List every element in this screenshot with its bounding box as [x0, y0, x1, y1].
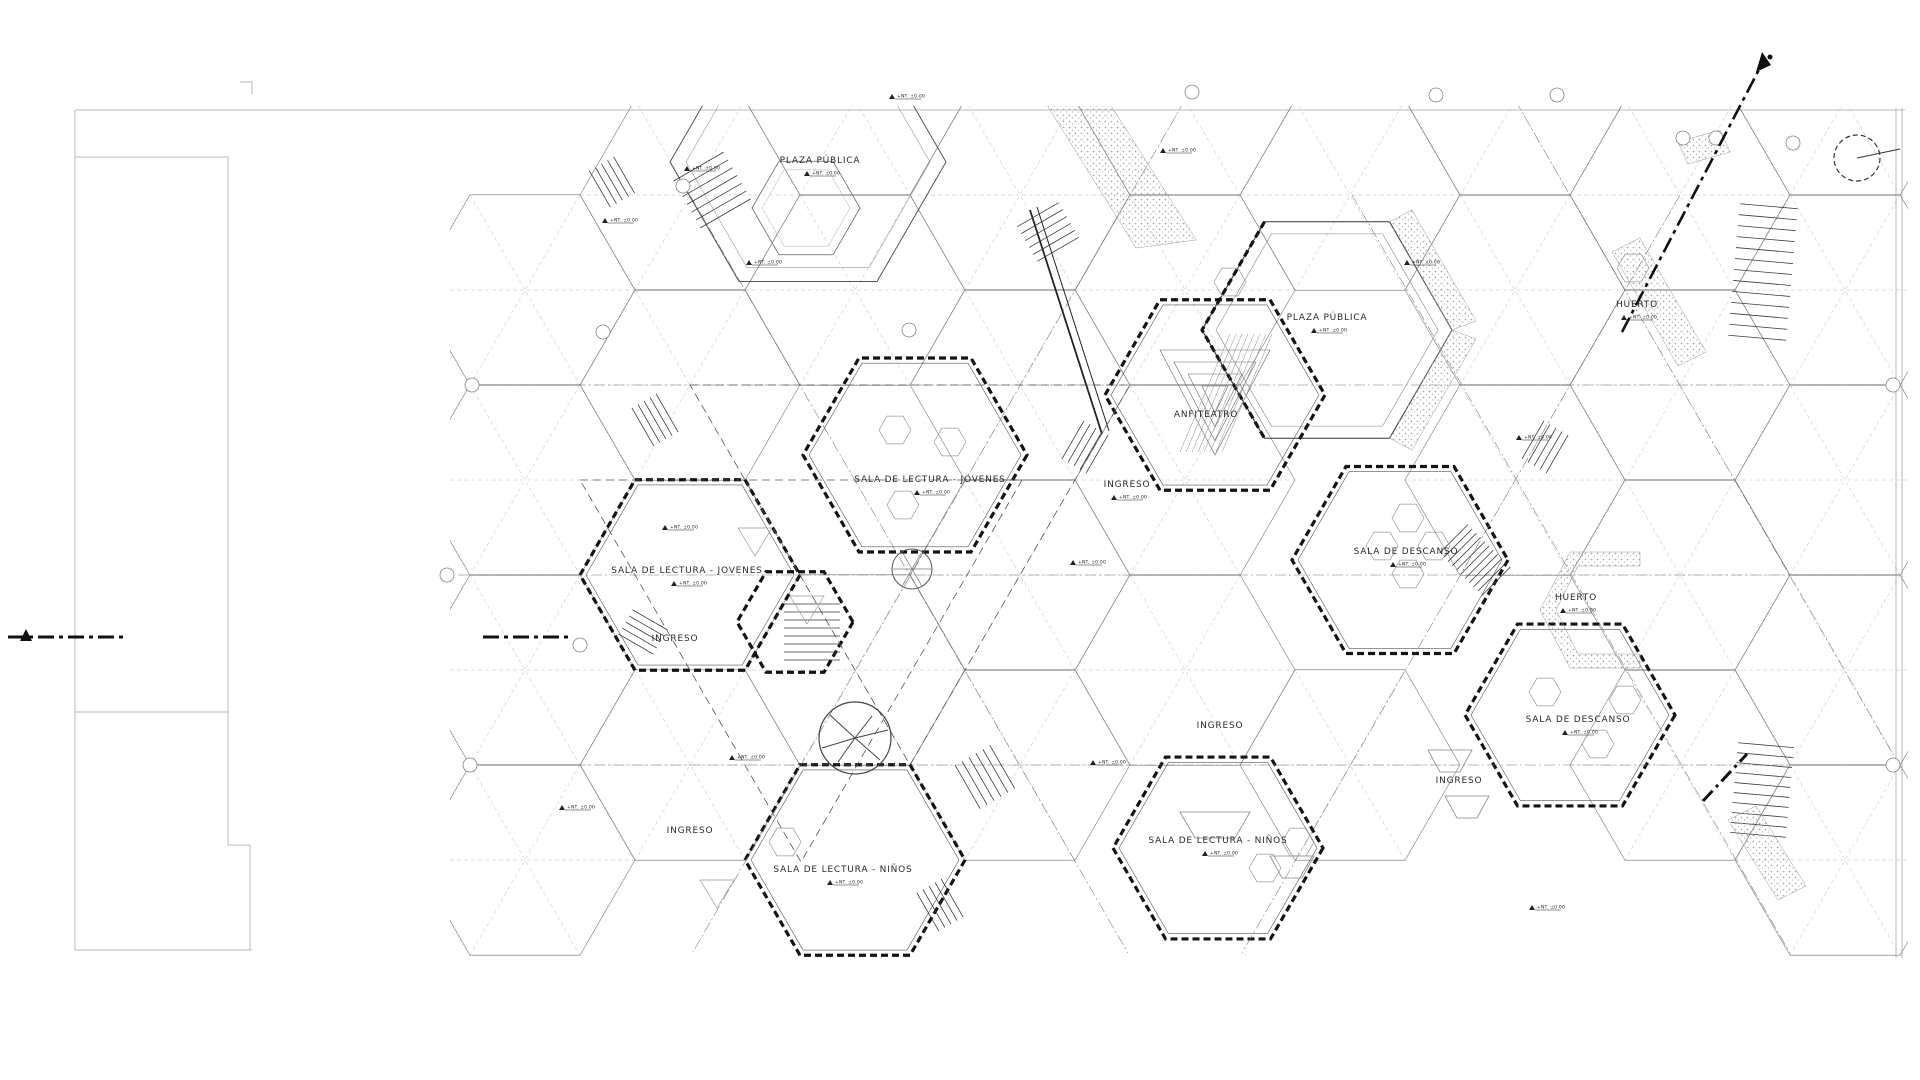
- room-label-huerto-2: HUERTO: [1616, 300, 1658, 310]
- boundary-tick: [240, 82, 252, 94]
- room-label-huerto-1: HUERTO: [1555, 593, 1597, 603]
- room-label-ingreso-5: INGRESO: [667, 826, 714, 836]
- level-marker-icon: +NT. ±0.00: [684, 166, 720, 172]
- level-marker-text: +NT. ±0.00: [1078, 560, 1106, 566]
- level-marker-icon: +NT. ±0.00: [889, 94, 925, 100]
- level-marker-icon: +NT. ±0.00: [1070, 560, 1106, 566]
- level-marker-text: +NT. ±0.00: [679, 581, 707, 587]
- level-marker-icon: +NT. ±0.00: [1404, 260, 1440, 266]
- level-marker-text: +NT. ±0.00: [922, 490, 950, 496]
- level-marker-text: +NT. ±0.00: [1168, 148, 1196, 154]
- level-marker-text: +NT. ±0.00: [692, 166, 720, 172]
- plaza-hexagons: [670, 42, 1452, 438]
- stair-run: [1728, 204, 1797, 341]
- level-marker-icon: +NT. ±0.00: [1529, 905, 1565, 911]
- level-marker-text: +NT. ±0.00: [1570, 730, 1598, 736]
- level-marker-text: +NT. ±0.00: [1319, 328, 1347, 334]
- room-hexagons: [580, 300, 1675, 956]
- stair-run: [589, 157, 634, 207]
- level-marker-icon: +NT. ±0.00: [914, 490, 950, 496]
- room-label-sala-lectura-jovenes-1: SALA DE LECTURA - JOVENES: [854, 475, 1005, 485]
- room-label-sala-lectura-ninos-1: SALA DE LECTURA - NIÑOS: [1148, 835, 1287, 846]
- plan-geometry: [415, 5, 1920, 956]
- floor-plan-canvas: +NT. ±0.00+NT. ±0.00+NT. ±0.00+NT. ±0.00…: [0, 0, 1920, 1080]
- level-marker-icon: +NT. ±0.00: [662, 525, 698, 531]
- stair-run: [917, 879, 963, 931]
- section-cut-lines: [8, 52, 1773, 801]
- level-marker-text: +NT. ±0.00: [1524, 435, 1552, 441]
- stair-run: [1440, 525, 1511, 596]
- stair-run: [619, 610, 668, 654]
- level-marker-text: +NT. ±0.00: [1568, 608, 1596, 614]
- level-marker-text: +NT. ±0.00: [897, 94, 925, 100]
- compass-icon: [1834, 135, 1900, 181]
- level-marker-text: +NT. ±0.00: [737, 755, 765, 761]
- grid-bubbles: [440, 85, 1900, 772]
- level-marker-icon: +NT. ±0.00: [1160, 148, 1196, 154]
- room-label-plaza-publica-1: PLAZA PÚBLICA: [780, 154, 861, 166]
- level-marker-icon: +NT. ±0.00: [1111, 495, 1147, 501]
- level-marker-icon: +NT. ±0.00: [804, 171, 840, 177]
- room-label-ingreso-3: INGRESO: [1436, 776, 1483, 786]
- level-marker-icon: +NT. ±0.00: [827, 880, 863, 886]
- stair-run: [955, 745, 1015, 808]
- tree-symbols: [819, 549, 932, 774]
- level-marker-icon: +NT. ±0.00: [671, 581, 707, 587]
- level-marker-text: +NT. ±0.00: [1537, 905, 1565, 911]
- level-marker-icon: +NT. ±0.00: [1562, 730, 1598, 736]
- furniture-symbols: [700, 254, 1649, 908]
- level-marker-text: +NT. ±0.00: [812, 171, 840, 177]
- room-label-ingreso-1: INGRESO: [1104, 480, 1151, 490]
- level-marker-text: +NT. ±0.00: [1098, 760, 1126, 766]
- level-markers: +NT. ±0.00+NT. ±0.00+NT. ±0.00+NT. ±0.00…: [559, 94, 1657, 911]
- level-marker-icon: +NT. ±0.00: [1560, 608, 1596, 614]
- site-boundary: [75, 82, 1905, 958]
- level-marker-icon: +NT. ±0.00: [1516, 435, 1552, 441]
- level-marker-icon: +NT. ±0.00: [1311, 328, 1347, 334]
- stair-run: [784, 604, 840, 660]
- stair-runs: [589, 152, 1797, 931]
- level-marker-text: +NT. ±0.00: [1629, 315, 1657, 321]
- room-label-ingreso-2: INGRESO: [652, 634, 699, 644]
- level-marker-text: +NT. ±0.00: [567, 805, 595, 811]
- level-marker-icon: +NT. ±0.00: [1390, 562, 1426, 568]
- level-marker-icon: +NT. ±0.00: [1621, 315, 1657, 321]
- level-marker-text: +NT. ±0.00: [670, 525, 698, 531]
- room-label-sala-lectura-ninos-2: SALA DE LECTURA - NIÑOS: [773, 864, 912, 875]
- level-marker-text: +NT. ±0.00: [610, 218, 638, 224]
- room-label-anfiteatro: ANFITEATRO: [1174, 410, 1238, 420]
- level-marker-icon: +NT. ±0.00: [559, 805, 595, 811]
- room-label-ingreso-4: INGRESO: [1197, 721, 1244, 731]
- stair-run: [632, 394, 678, 446]
- level-marker-text: +NT. ±0.00: [1210, 851, 1238, 857]
- level-marker-icon: +NT. ±0.00: [1202, 851, 1238, 857]
- stair-run: [1017, 203, 1079, 262]
- axis-triangles: [580, 385, 1130, 862]
- level-marker-text: +NT. ±0.00: [1412, 260, 1440, 266]
- level-marker-text: +NT. ±0.00: [835, 880, 863, 886]
- room-label-sala-descanso-2: SALA DE DESCANSO: [1526, 715, 1631, 725]
- level-marker-icon: +NT. ±0.00: [1090, 760, 1126, 766]
- level-marker-text: +NT. ±0.00: [1398, 562, 1426, 568]
- level-marker-icon: +NT. ±0.00: [602, 218, 638, 224]
- room-label-sala-lectura-jovenes-2: SALA DE LECTURA - JOVENES: [611, 566, 762, 576]
- level-marker-icon: +NT. ±0.00: [729, 755, 765, 761]
- level-marker-icon: +NT. ±0.00: [746, 260, 782, 266]
- level-marker-text: +NT. ±0.00: [754, 260, 782, 266]
- section-arrow-left: [20, 629, 32, 641]
- room-label-plaza-publica-2: PLAZA PÚBLICA: [1287, 311, 1368, 323]
- level-marker-text: +NT. ±0.00: [1119, 495, 1147, 501]
- room-label-sala-descanso-1: SALA DE DESCANSO: [1354, 547, 1459, 557]
